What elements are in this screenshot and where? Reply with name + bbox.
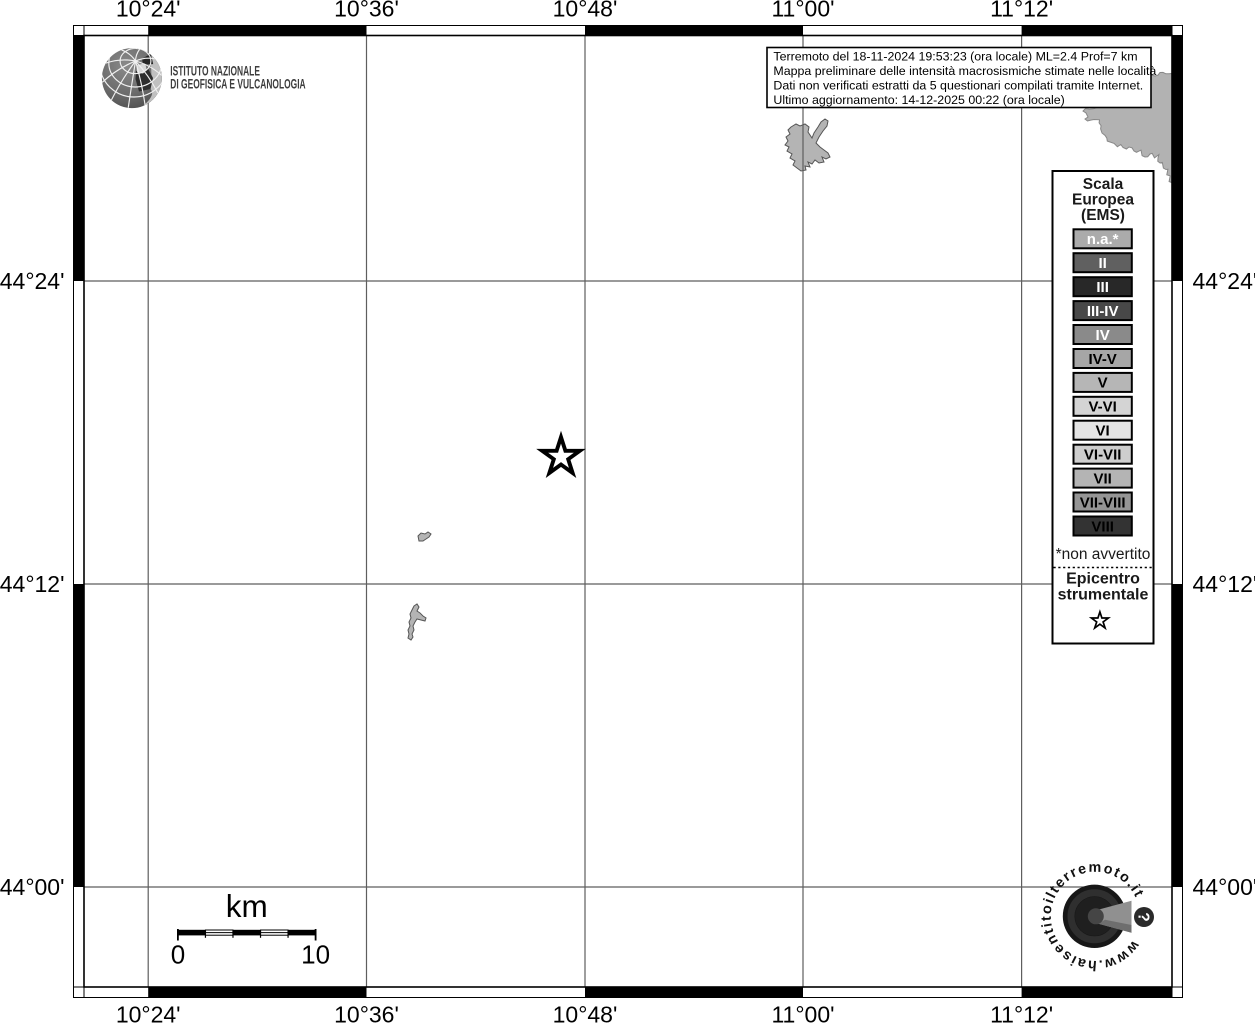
svg-text:VII-VIII: VII-VIII (1080, 494, 1126, 511)
svg-text:44°12': 44°12' (1193, 571, 1255, 597)
svg-text:III-IV: III-IV (1087, 303, 1119, 320)
svg-text:III: III (1096, 279, 1109, 296)
svg-text:44°12': 44°12' (0, 571, 65, 597)
svg-text:Europea: Europea (1072, 192, 1134, 209)
svg-text:(EMS): (EMS) (1081, 207, 1125, 224)
svg-text:44°00': 44°00' (1193, 874, 1255, 900)
svg-text:10°36': 10°36' (334, 1002, 399, 1024)
svg-text:n.a.*: n.a.* (1087, 231, 1119, 248)
svg-text:Dati non verificati estratti d: Dati non verificati estratti da 5 questi… (773, 79, 1143, 93)
svg-text:Mappa preliminare delle intens: Mappa preliminare delle intensità macros… (773, 64, 1156, 78)
svg-text:Scala: Scala (1083, 176, 1124, 193)
svg-text:IV-V: IV-V (1088, 351, 1116, 368)
svg-text:IV: IV (1096, 327, 1110, 344)
svg-text:10°48': 10°48' (553, 1002, 618, 1024)
svg-text:VIII: VIII (1091, 518, 1114, 535)
svg-text:km: km (226, 888, 268, 924)
svg-text:44°00': 44°00' (0, 874, 65, 900)
svg-text:10°48': 10°48' (553, 0, 618, 22)
svg-text:10°24': 10°24' (116, 0, 181, 22)
svg-text:10: 10 (301, 940, 330, 970)
svg-text:strumentale: strumentale (1058, 587, 1149, 604)
svg-text:0: 0 (171, 940, 185, 970)
svg-text:?: ? (1135, 912, 1152, 921)
svg-text:Epicentro: Epicentro (1066, 571, 1140, 588)
svg-text:II: II (1098, 255, 1106, 272)
svg-text:VI: VI (1096, 423, 1110, 440)
svg-text:11°12': 11°12' (990, 1002, 1053, 1024)
svg-text:11°00': 11°00' (771, 0, 834, 22)
svg-text:10°36': 10°36' (334, 0, 399, 22)
svg-text:VI-VII: VI-VII (1084, 447, 1122, 464)
svg-text:44°24': 44°24' (1193, 268, 1255, 294)
svg-text:44°24': 44°24' (0, 268, 65, 294)
svg-text:11°12': 11°12' (990, 0, 1053, 22)
svg-text:V-VI: V-VI (1088, 399, 1116, 416)
svg-text:*non avvertito: *non avvertito (1056, 546, 1151, 563)
svg-text:Ultimo aggiornamento: 14-12-20: Ultimo aggiornamento: 14-12-2025 00:22 (… (773, 93, 1064, 107)
svg-text:VII: VII (1093, 470, 1111, 487)
svg-text:Terremoto del 18-11-2024 19:53: Terremoto del 18-11-2024 19:53:23 (ora l… (773, 50, 1137, 64)
svg-text:DI GEOFISICA E VULCANOLOGIA: DI GEOFISICA E VULCANOLOGIA (170, 77, 305, 92)
svg-text:V: V (1098, 375, 1108, 392)
svg-text:11°00': 11°00' (771, 1002, 834, 1024)
svg-text:10°24': 10°24' (116, 1002, 181, 1024)
